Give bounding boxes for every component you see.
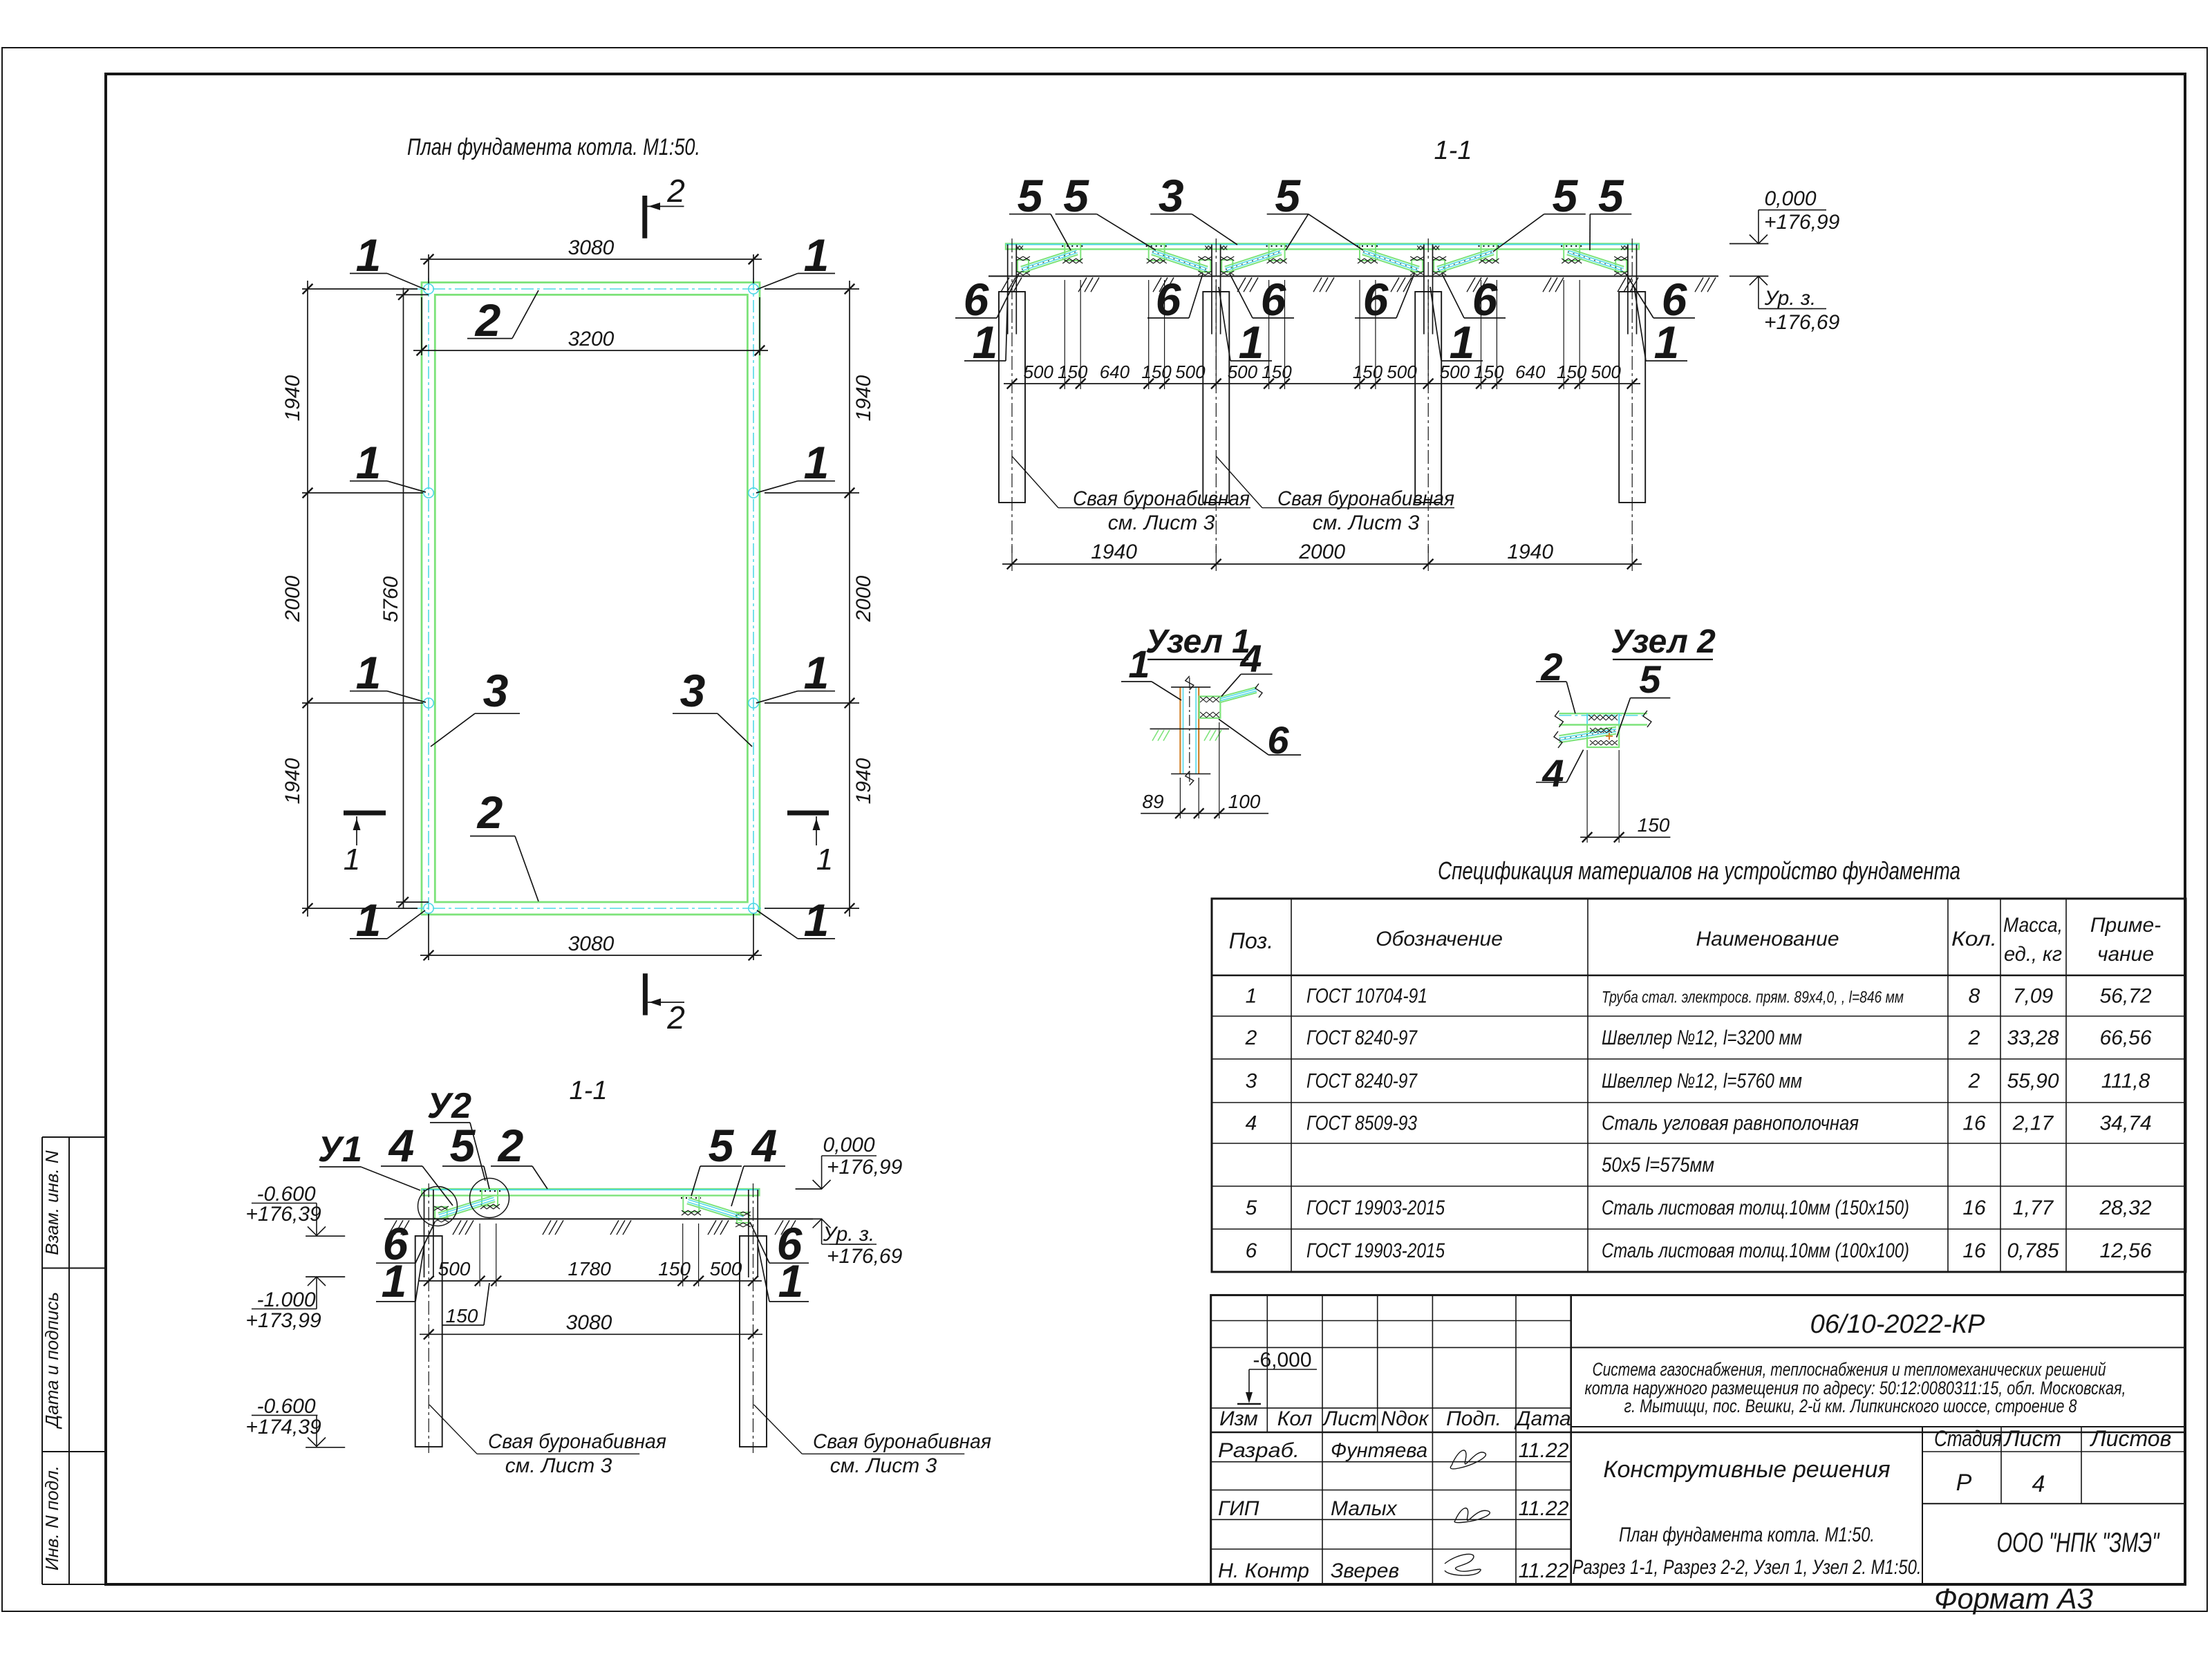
svg-text:см. Лист 3: см. Лист 3 <box>830 1454 937 1477</box>
svg-text:150: 150 <box>1141 362 1172 382</box>
svg-text:1: 1 <box>1128 642 1150 686</box>
svg-text:5: 5 <box>709 1120 735 1171</box>
svg-text:Система газоснабжения, теплосн: Система газоснабжения, теплоснабжения и … <box>1593 1359 2106 1380</box>
svg-text:1780: 1780 <box>568 1258 612 1280</box>
svg-text:89: 89 <box>1142 791 1163 812</box>
svg-text:150: 150 <box>1262 362 1292 382</box>
svg-text:Малых: Малых <box>1331 1497 1398 1520</box>
svg-text:Свая буронабивная: Свая буронабивная <box>488 1430 666 1453</box>
svg-text:500: 500 <box>438 1258 471 1280</box>
svg-text:16: 16 <box>1962 1112 1986 1135</box>
svg-text:0,000: 0,000 <box>1764 187 1816 210</box>
svg-text:1: 1 <box>1239 317 1264 368</box>
svg-text:1: 1 <box>1654 317 1680 368</box>
svg-text:1: 1 <box>804 894 829 946</box>
svg-text:150: 150 <box>1557 362 1587 382</box>
svg-text:55,90: 55,90 <box>2007 1070 2059 1093</box>
svg-text:150: 150 <box>1058 362 1088 382</box>
svg-text:1: 1 <box>356 437 382 488</box>
svg-text:4: 4 <box>1246 1112 1257 1135</box>
svg-text:2: 2 <box>666 173 685 209</box>
svg-text:Поз.: Поз. <box>1229 928 1273 953</box>
svg-text:1940: 1940 <box>1091 541 1137 563</box>
svg-text:ГОСТ 19903-2015: ГОСТ 19903-2015 <box>1306 1239 1445 1262</box>
svg-text:+176,69: +176,69 <box>827 1245 903 1268</box>
svg-text:1: 1 <box>804 437 829 488</box>
svg-text:Лист: Лист <box>2003 1426 2061 1451</box>
svg-text:2,17: 2,17 <box>2012 1112 2054 1135</box>
svg-text:2000: 2000 <box>281 575 304 622</box>
svg-text:1-1: 1-1 <box>1434 136 1472 165</box>
svg-text:66,56: 66,56 <box>2099 1027 2151 1049</box>
svg-text:Фунтяева: Фунтяева <box>1331 1439 1427 1462</box>
svg-text:План фундамента котла. М1:50.: План фундамента котла. М1:50. <box>407 134 700 160</box>
svg-text:Формат А3: Формат А3 <box>1934 1582 2093 1615</box>
svg-text:см. Лист 3: см. Лист 3 <box>1108 512 1215 534</box>
svg-text:8: 8 <box>1969 985 1980 1008</box>
svg-text:Дата: Дата <box>1514 1407 1571 1430</box>
svg-text:+173,99: +173,99 <box>245 1309 321 1332</box>
svg-text:0,785: 0,785 <box>2007 1239 2059 1262</box>
svg-text:12,56: 12,56 <box>2099 1239 2151 1262</box>
svg-text:1: 1 <box>1246 985 1257 1008</box>
svg-text:500: 500 <box>1387 362 1417 382</box>
svg-text:500: 500 <box>1175 362 1206 382</box>
svg-text:4: 4 <box>388 1120 415 1171</box>
svg-text:Труба стал. электросв. прям. 8: Труба стал. электросв. прям. 89х4,0, , l… <box>1602 988 1904 1007</box>
svg-text:+176,99: +176,99 <box>827 1156 903 1179</box>
svg-text:Ур. з.: Ур. з. <box>823 1223 874 1246</box>
svg-text:3: 3 <box>1246 1070 1257 1093</box>
svg-text:150: 150 <box>1638 814 1670 836</box>
svg-text:4: 4 <box>1541 751 1564 795</box>
svg-text:4: 4 <box>751 1120 778 1171</box>
svg-text:500: 500 <box>1591 362 1622 382</box>
svg-text:Свая буронабивная: Свая буронабивная <box>1073 487 1250 510</box>
svg-text:ГОСТ 19903-2015: ГОСТ 19903-2015 <box>1306 1197 1445 1219</box>
svg-text:1940: 1940 <box>281 375 304 421</box>
svg-text:3: 3 <box>483 665 509 716</box>
svg-text:ГОСТ 8240-97: ГОСТ 8240-97 <box>1306 1027 1418 1049</box>
svg-text:1940: 1940 <box>852 375 875 421</box>
svg-text:Ур. з.: Ур. з. <box>1764 287 1816 310</box>
svg-text:28,32: 28,32 <box>2099 1197 2151 1219</box>
svg-text:1: 1 <box>973 317 998 368</box>
svg-text:Свая буронабивная: Свая буронабивная <box>813 1430 991 1453</box>
svg-text:1: 1 <box>1450 317 1475 368</box>
svg-text:ГОСТ 8240-97: ГОСТ 8240-97 <box>1306 1070 1418 1093</box>
svg-text:0,000: 0,000 <box>823 1134 874 1156</box>
svg-text:Кол.: Кол. <box>1951 928 1997 950</box>
svg-text:56,72: 56,72 <box>2099 985 2151 1008</box>
svg-text:1940: 1940 <box>852 758 875 804</box>
svg-text:Конструтивные решения: Конструтивные решения <box>1603 1456 1890 1483</box>
svg-text:6: 6 <box>1246 1239 1257 1262</box>
svg-text:150: 150 <box>1353 362 1383 382</box>
svg-text:Nдок: Nдок <box>1380 1407 1430 1430</box>
svg-text:Сталь листовая толщ.10мм (100х: Сталь листовая толщ.10мм (100х100) <box>1602 1239 1909 1262</box>
svg-text:2000: 2000 <box>852 575 875 622</box>
svg-text:-6,000: -6,000 <box>1253 1349 1311 1371</box>
svg-text:Швеллер №12, l=5760 мм: Швеллер №12, l=5760 мм <box>1602 1070 1802 1093</box>
svg-text:500: 500 <box>1024 362 1054 382</box>
svg-text:6: 6 <box>1156 274 1182 325</box>
svg-text:ГОСТ 8509-93: ГОСТ 8509-93 <box>1306 1112 1417 1135</box>
svg-text:ООО "НПК "ЗМЭ": ООО "НПК "ЗМЭ" <box>1997 1528 2160 1558</box>
svg-text:150: 150 <box>1474 362 1504 382</box>
svg-text:Зверев: Зверев <box>1331 1559 1399 1582</box>
svg-text:6: 6 <box>1261 274 1287 325</box>
svg-text:Наименование: Наименование <box>1696 928 1839 950</box>
svg-text:1: 1 <box>382 1255 407 1306</box>
svg-text:ГОСТ 10704-91: ГОСТ 10704-91 <box>1306 985 1427 1008</box>
svg-text:Узел 1: Узел 1 <box>1145 624 1250 660</box>
svg-text:Масса,: Масса, <box>2003 914 2063 937</box>
svg-text:4: 4 <box>2032 1471 2045 1497</box>
svg-text:11.22: 11.22 <box>1519 1559 1569 1582</box>
svg-text:150: 150 <box>446 1305 478 1327</box>
svg-text:г. Мытищи, пос. Вешки, 2-й км.: г. Мытищи, пос. Вешки, 2-й км. Липкинско… <box>1624 1396 2077 1416</box>
svg-text:6: 6 <box>1363 274 1389 325</box>
svg-text:Листов: Листов <box>2090 1426 2172 1451</box>
svg-text:+174,39: +174,39 <box>245 1416 321 1438</box>
svg-text:3080: 3080 <box>566 1311 612 1334</box>
svg-text:Разраб.: Разраб. <box>1218 1439 1300 1462</box>
svg-text:6: 6 <box>1472 274 1499 325</box>
svg-text:см. Лист 3: см. Лист 3 <box>505 1454 612 1477</box>
svg-text:+176,69: +176,69 <box>1764 311 1840 334</box>
svg-text:11.22: 11.22 <box>1519 1497 1569 1520</box>
svg-text:2: 2 <box>1968 1070 1980 1093</box>
svg-text:Взам. инв. N: Взам. инв. N <box>41 1150 62 1255</box>
svg-text:1-1: 1-1 <box>570 1076 608 1105</box>
svg-text:1: 1 <box>344 843 360 877</box>
svg-text:2: 2 <box>476 787 503 838</box>
svg-text:Разрез 1-1, Разрез 2-2, Узел 1: Разрез 1-1, Разрез 2-2, Узел 1, Узел 2. … <box>1573 1556 1922 1579</box>
svg-text:3080: 3080 <box>568 932 615 955</box>
svg-text:Лист: Лист <box>1322 1407 1376 1430</box>
svg-text:1: 1 <box>356 894 382 946</box>
svg-text:План фундамента котла. М1:50.: План фундамента котла. М1:50. <box>1619 1524 1875 1546</box>
svg-text:Р: Р <box>1956 1470 1972 1496</box>
svg-text:150: 150 <box>658 1258 691 1280</box>
svg-text:Приме-: Приме- <box>2090 914 2161 937</box>
svg-text:16: 16 <box>1962 1239 1986 1262</box>
svg-text:3080: 3080 <box>568 236 615 259</box>
svg-text:3: 3 <box>680 665 706 716</box>
svg-text:2: 2 <box>1968 1027 1980 1049</box>
svg-text:2: 2 <box>666 1000 685 1035</box>
svg-text:5760: 5760 <box>379 576 402 622</box>
svg-text:3200: 3200 <box>568 328 615 350</box>
svg-text:Швеллер №12, l=3200 мм: Швеллер №12, l=3200 мм <box>1602 1027 1802 1049</box>
svg-text:Н. Контр: Н. Контр <box>1218 1559 1309 1582</box>
svg-text:ед., кг: ед., кг <box>2004 943 2062 966</box>
svg-text:Кол: Кол <box>1277 1407 1313 1430</box>
svg-text:Инв. N подл.: Инв. N подл. <box>41 1465 62 1571</box>
svg-text:2000: 2000 <box>1298 541 1345 563</box>
svg-text:чание: чание <box>2097 943 2154 966</box>
svg-text:-1.000: -1.000 <box>256 1288 315 1311</box>
svg-text:1940: 1940 <box>281 758 304 804</box>
svg-text:5: 5 <box>1639 657 1661 701</box>
svg-text:111,8: 111,8 <box>2101 1070 2150 1093</box>
svg-text:2: 2 <box>1245 1027 1257 1049</box>
svg-text:Свая буронабивная: Свая буронабивная <box>1277 487 1454 510</box>
svg-text:06/10-2022-КР: 06/10-2022-КР <box>1810 1310 1985 1339</box>
svg-text:16: 16 <box>1962 1197 1986 1219</box>
svg-text:100: 100 <box>1228 791 1261 812</box>
svg-text:1940: 1940 <box>1507 541 1553 563</box>
svg-text:7,09: 7,09 <box>2013 985 2054 1008</box>
svg-text:1,77: 1,77 <box>2013 1197 2054 1219</box>
svg-text:Стадия: Стадия <box>1934 1426 2002 1451</box>
svg-text:34,74: 34,74 <box>2099 1112 2151 1135</box>
svg-text:-0.600: -0.600 <box>256 1395 315 1418</box>
svg-text:11.22: 11.22 <box>1519 1439 1569 1462</box>
svg-text:2: 2 <box>497 1120 524 1171</box>
svg-text:Подп.: Подп. <box>1446 1407 1501 1430</box>
svg-text:Сталь листовая толщ.10мм (150х: Сталь листовая толщ.10мм (150х150) <box>1602 1197 1909 1219</box>
svg-text:Спецификация материалов на уст: Спецификация материалов на устройство фу… <box>1438 856 1960 885</box>
svg-text:см. Лист 3: см. Лист 3 <box>1313 512 1420 534</box>
svg-text:Узел 2: Узел 2 <box>1611 624 1716 660</box>
svg-text:500: 500 <box>710 1258 742 1280</box>
svg-text:50х5 l=575мм: 50х5 l=575мм <box>1602 1154 1714 1177</box>
svg-text:Сталь угловая равнополочная: Сталь угловая равнополочная <box>1602 1112 1859 1135</box>
svg-text:Изм: Изм <box>1219 1407 1258 1430</box>
svg-text:+176,39: +176,39 <box>245 1203 321 1226</box>
svg-text:+176,99: +176,99 <box>1764 211 1840 234</box>
svg-text:ГИП: ГИП <box>1218 1497 1259 1520</box>
svg-text:1: 1 <box>816 843 833 877</box>
svg-text:У1: У1 <box>318 1130 362 1170</box>
svg-text:640: 640 <box>1100 362 1130 382</box>
svg-text:Обозначение: Обозначение <box>1376 928 1503 950</box>
svg-text:33,28: 33,28 <box>2007 1027 2059 1049</box>
svg-text:5: 5 <box>450 1120 476 1171</box>
svg-text:640: 640 <box>1515 362 1546 382</box>
svg-text:5: 5 <box>1246 1197 1257 1219</box>
svg-text:1: 1 <box>778 1255 804 1306</box>
svg-text:Дата и подпись: Дата и подпись <box>41 1292 62 1430</box>
